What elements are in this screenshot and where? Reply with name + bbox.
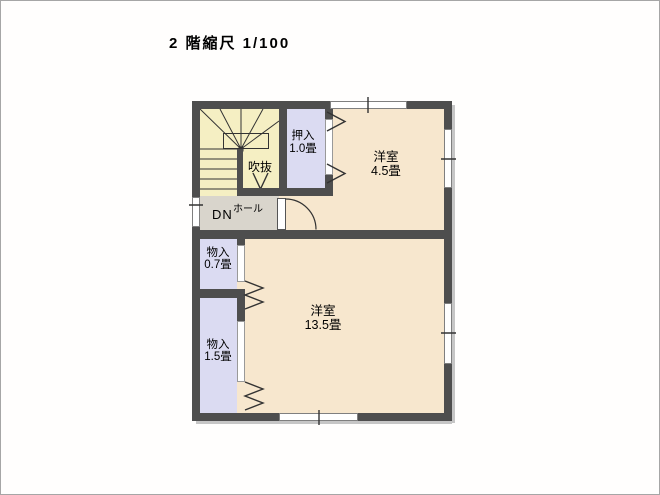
yoshitsu-45-area: 4.5畳	[351, 165, 421, 179]
floorplan-page: 2 階縮尺 1/100 押入 1.0畳 洋室 4.5畳 吹抜 DN ホール 物入…	[0, 0, 660, 495]
yoshitsu-135-name: 洋室	[288, 305, 358, 319]
door-leaf	[278, 199, 286, 230]
monoire-07-area: 0.7畳	[193, 259, 243, 271]
wall-top	[192, 101, 452, 109]
shadow-right	[452, 105, 455, 423]
label-dn: DN	[212, 207, 233, 222]
monoire-07-name: 物入	[193, 247, 243, 259]
page-title: 2 階縮尺 1/100	[169, 32, 290, 53]
wall-oshiire-right-bottom	[325, 175, 333, 196]
label-fukinuke: 吹抜	[230, 158, 290, 175]
wall-oshiire-bottom	[237, 188, 333, 196]
label-hall: ホール	[233, 200, 263, 215]
yoshitsu-135-area: 13.5畳	[288, 319, 358, 333]
window-hall-left	[193, 198, 200, 227]
label-monoire-07: 物入 0.7畳	[193, 247, 243, 271]
oshiire-name: 押入	[268, 130, 338, 143]
monoire-15-area: 1.5畳	[193, 351, 243, 363]
wall-monoire-right-mid	[237, 298, 245, 321]
label-monoire-15: 物入 1.5畳	[193, 339, 243, 363]
label-yoshitsu-135: 洋室 13.5畳	[288, 305, 358, 332]
wall-divider	[192, 230, 452, 239]
label-oshiire: 押入 1.0畳	[268, 130, 338, 155]
yoshitsu-45-name: 洋室	[351, 151, 421, 165]
wall-inter-storage	[200, 289, 245, 298]
oshiire-area: 1.0畳	[268, 143, 338, 156]
wall-monoire-right-top	[237, 230, 245, 245]
shadow-bottom	[196, 421, 452, 424]
floorplan-canvas	[1, 1, 660, 495]
label-yoshitsu-45: 洋室 4.5畳	[351, 151, 421, 178]
monoire-15-name: 物入	[193, 339, 243, 351]
